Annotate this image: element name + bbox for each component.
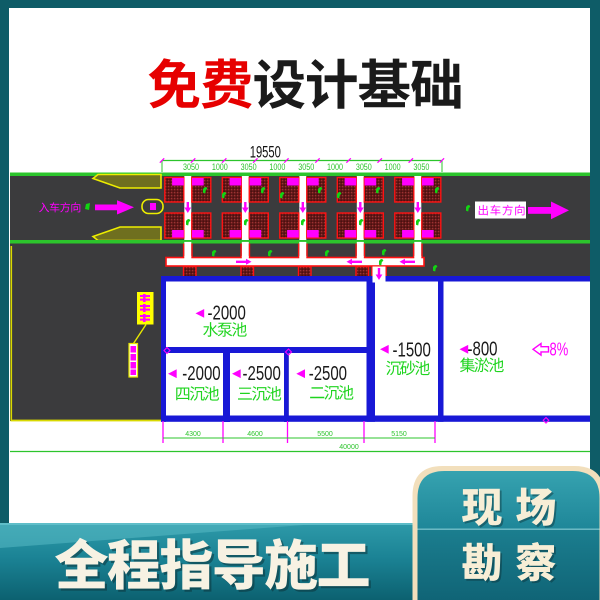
svg-text:-2500: -2500 xyxy=(309,362,347,385)
svg-text:3050: 3050 xyxy=(183,162,199,172)
svg-text:5500: 5500 xyxy=(317,431,333,438)
svg-text:3050: 3050 xyxy=(356,162,372,172)
svg-text:19550: 19550 xyxy=(250,143,281,162)
svg-text:1000: 1000 xyxy=(269,162,285,172)
svg-text:3050: 3050 xyxy=(413,162,429,172)
svg-text:-800: -800 xyxy=(468,337,498,360)
svg-text:1000: 1000 xyxy=(385,162,401,172)
svg-text:-2000: -2000 xyxy=(208,301,246,324)
svg-text:-2500: -2500 xyxy=(243,362,281,385)
svg-text:5150: 5150 xyxy=(391,431,407,438)
svg-text:1000: 1000 xyxy=(212,162,228,172)
svg-text:40000: 40000 xyxy=(339,444,359,451)
svg-text:4300: 4300 xyxy=(185,431,201,438)
svg-text:4600: 4600 xyxy=(247,431,263,438)
svg-text:8%: 8% xyxy=(550,340,569,360)
svg-text:1000: 1000 xyxy=(327,162,343,172)
svg-text:3050: 3050 xyxy=(298,162,314,172)
svg-text:-1500: -1500 xyxy=(393,338,431,361)
svg-text:-2000: -2000 xyxy=(182,362,220,385)
svg-text:3050: 3050 xyxy=(241,162,257,172)
